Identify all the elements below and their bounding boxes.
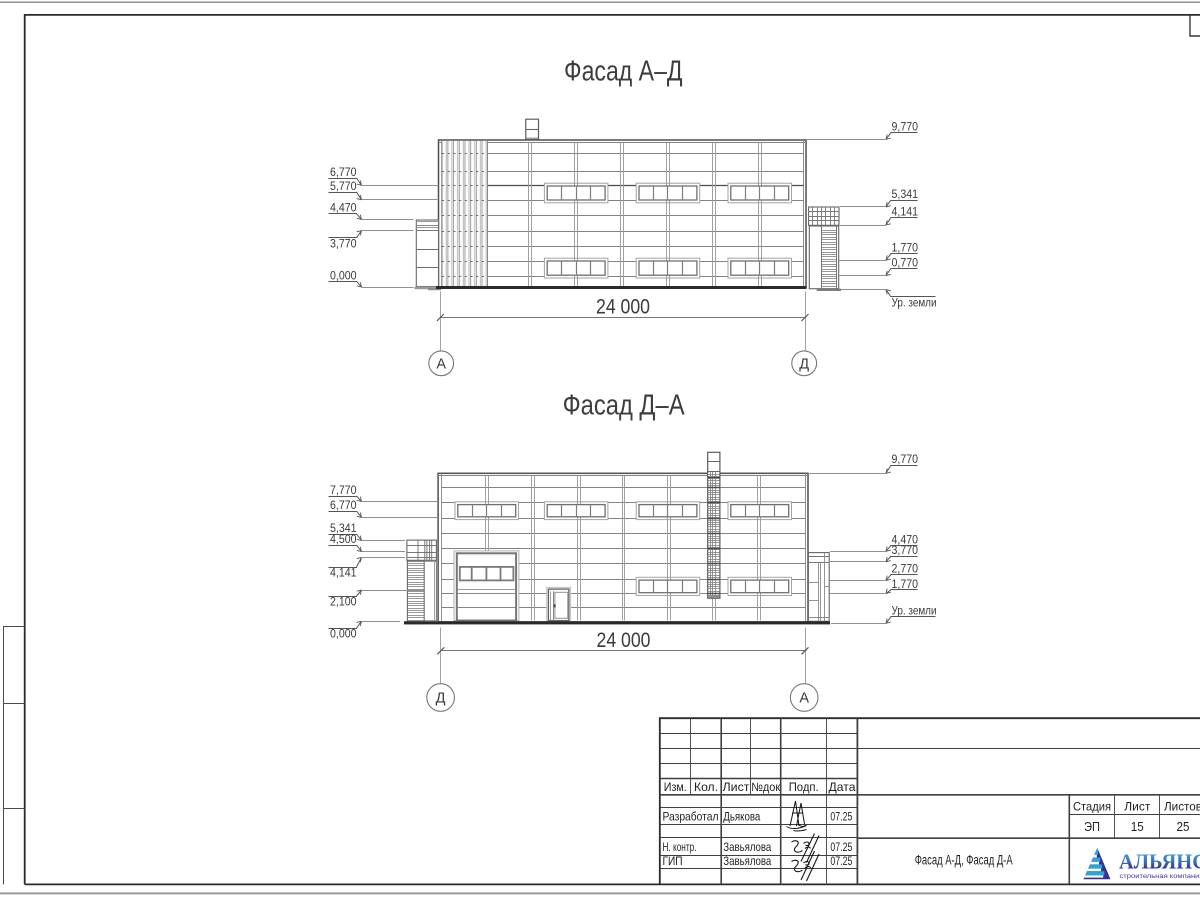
svg-text:ЭП: ЭП [1084,820,1100,834]
svg-text:Завьялова: Завьялова [723,840,771,854]
svg-text:24 000: 24 000 [597,629,651,652]
svg-text:6,770: 6,770 [330,500,357,512]
svg-text:Фасад А-Д, Фасад Д-А: Фасад А-Д, Фасад Д-А [915,853,1013,868]
svg-text:Н. контр.: Н. контр. [663,840,697,854]
svg-text:9,770: 9,770 [892,122,919,134]
svg-text:24 000: 24 000 [596,296,650,319]
svg-text:Ур. земли: Ур. земли [892,297,937,309]
svg-text:Листов: Листов [1164,800,1200,814]
svg-text:4,500: 4,500 [330,534,357,546]
svg-text:3,770: 3,770 [892,545,919,557]
svg-text:Фасад А–Д: Фасад А–Д [564,56,683,88]
svg-text:7,770: 7,770 [330,485,357,497]
svg-text:Дата: Дата [829,780,856,794]
svg-text:6,770: 6,770 [330,167,357,179]
svg-text:5,770: 5,770 [330,181,357,193]
svg-text:5,341: 5,341 [892,189,919,201]
svg-text:4,141: 4,141 [892,206,919,218]
svg-text:07.25: 07.25 [830,854,852,868]
svg-text:Фасад Д–А: Фасад Д–А [563,390,686,422]
svg-text:Стадия: Стадия [1073,800,1111,814]
svg-text:строительная компания: строительная компания [1120,873,1200,880]
svg-text:А: А [436,356,446,372]
svg-text:07.25: 07.25 [830,840,852,854]
svg-text:1,770: 1,770 [892,579,919,591]
svg-text:Ур. земли: Ур. земли [892,606,937,618]
svg-text:0,000: 0,000 [330,270,357,282]
svg-text:Завьялова: Завьялова [723,854,771,868]
svg-text:4,470: 4,470 [330,203,357,215]
svg-text:Д: Д [799,356,809,372]
svg-text:9,770: 9,770 [892,454,919,466]
svg-text:4,141: 4,141 [330,568,357,580]
svg-text:АЛЬЯНС: АЛЬЯНС [1119,849,1200,873]
svg-text:А: А [799,691,809,707]
svg-text:№док: №док [751,780,781,794]
svg-text:ГИП: ГИП [663,854,683,868]
svg-text:25: 25 [1177,820,1190,834]
svg-text:Разработал: Разработал [663,809,719,823]
svg-text:Изм.: Изм. [664,780,687,794]
svg-text:0,770: 0,770 [892,257,919,269]
svg-text:Д: Д [436,691,446,707]
svg-text:2,770: 2,770 [892,564,919,576]
svg-text:Кол.: Кол. [694,780,718,794]
svg-text:3,770: 3,770 [330,238,357,250]
svg-text:Подп.: Подп. [789,780,819,794]
svg-text:Лист: Лист [1124,800,1150,814]
svg-text:Лист: Лист [723,780,751,794]
svg-text:0,000: 0,000 [330,629,357,641]
svg-text:1,770: 1,770 [892,243,919,255]
svg-text:07.25: 07.25 [830,809,852,823]
svg-text:2,100: 2,100 [330,597,357,609]
svg-text:Дьякова: Дьякова [723,809,760,823]
svg-text:15: 15 [1131,820,1144,834]
